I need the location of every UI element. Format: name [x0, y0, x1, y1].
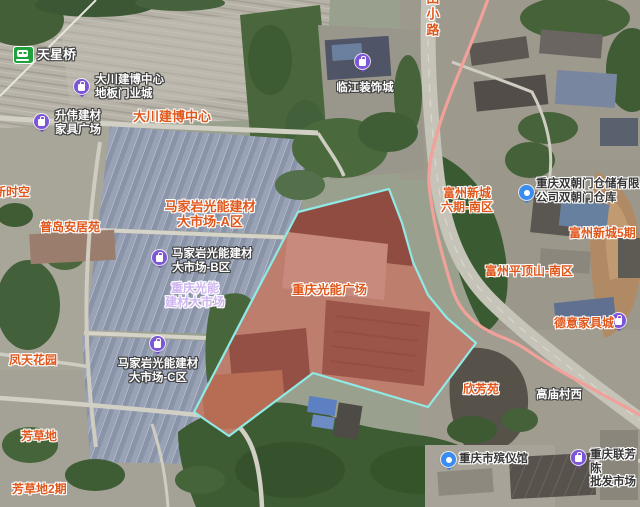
label-shuangchaomen[interactable]: 重庆双朝门仓储有限 公司双朝门仓库 [536, 178, 640, 205]
label-pudao[interactable]: 普岛安居苑 [40, 220, 100, 234]
label-road-name: 田小路 [424, 0, 439, 39]
pin-icon-lianfang[interactable] [571, 450, 587, 471]
label-xinfangyuan[interactable]: 欣芳苑 [463, 382, 499, 396]
pin-icon-majiayan-b[interactable] [152, 250, 168, 271]
label-tianxingqiao[interactable]: 天星桥 [37, 47, 76, 62]
label-dachuan-area[interactable]: 大川建博中心 [133, 109, 211, 124]
label-guangneng-plaza[interactable]: 重庆光能广场 [292, 283, 367, 298]
label-fuzhou5[interactable]: 富州新城5期 [569, 226, 636, 240]
label-gaomiao[interactable]: 高庙村西 [536, 389, 582, 403]
satellite-map-canvas[interactable]: 天星桥 大川建博中心 地板门业城 升伟建材 家具广场 大川建博中心 临江装饰城 … [0, 0, 640, 507]
label-dachuan-poi[interactable]: 大川建博中心 地板门业城 [95, 74, 164, 101]
label-fengtian[interactable]: 凤天花园 [9, 353, 57, 367]
label-deyi[interactable]: 德意家具城 [554, 316, 614, 330]
label-linjiang[interactable]: 临江装饰城 [333, 82, 397, 96]
label-fangcaodi2[interactable]: 芳草地2期 [12, 482, 67, 496]
label-fuzhou6[interactable]: 富州新城 六期-南区 [436, 186, 498, 214]
label-fangcaodi[interactable]: 芳草地 [21, 429, 57, 443]
pin-icon-binyiguan[interactable] [441, 452, 457, 473]
label-binyiguan[interactable]: 重庆市殡仪馆 [459, 453, 528, 467]
pin-icon-linjiang[interactable] [355, 54, 371, 75]
label-pingdingshan[interactable]: 富州平顶山-南区 [485, 264, 573, 278]
pin-icon-majiayan-c[interactable] [150, 336, 166, 357]
pin-icon-shuangchaomen[interactable] [519, 185, 535, 206]
label-xinshikong[interactable]: 新时空 [0, 185, 30, 199]
label-majiayan-a[interactable]: 马家岩光能建材 大市场-A区 [158, 199, 262, 230]
pin-icon-dachuan[interactable] [74, 79, 90, 100]
metro-station-icon[interactable] [13, 46, 34, 64]
label-guangneng-aoi[interactable]: 重庆光能 建材大市场 [153, 281, 237, 309]
label-majiayan-c[interactable]: 马家岩光能建材 大市场-C区 [116, 358, 200, 385]
label-majiayan-b[interactable]: 马家岩光能建材 大市场-B区 [172, 248, 253, 275]
pin-icon-shengwei[interactable] [34, 114, 50, 135]
label-lianfang[interactable]: 重庆联芳陈 批发市场 [590, 449, 640, 490]
label-shengwei[interactable]: 升伟建材 家具广场 [55, 110, 101, 137]
